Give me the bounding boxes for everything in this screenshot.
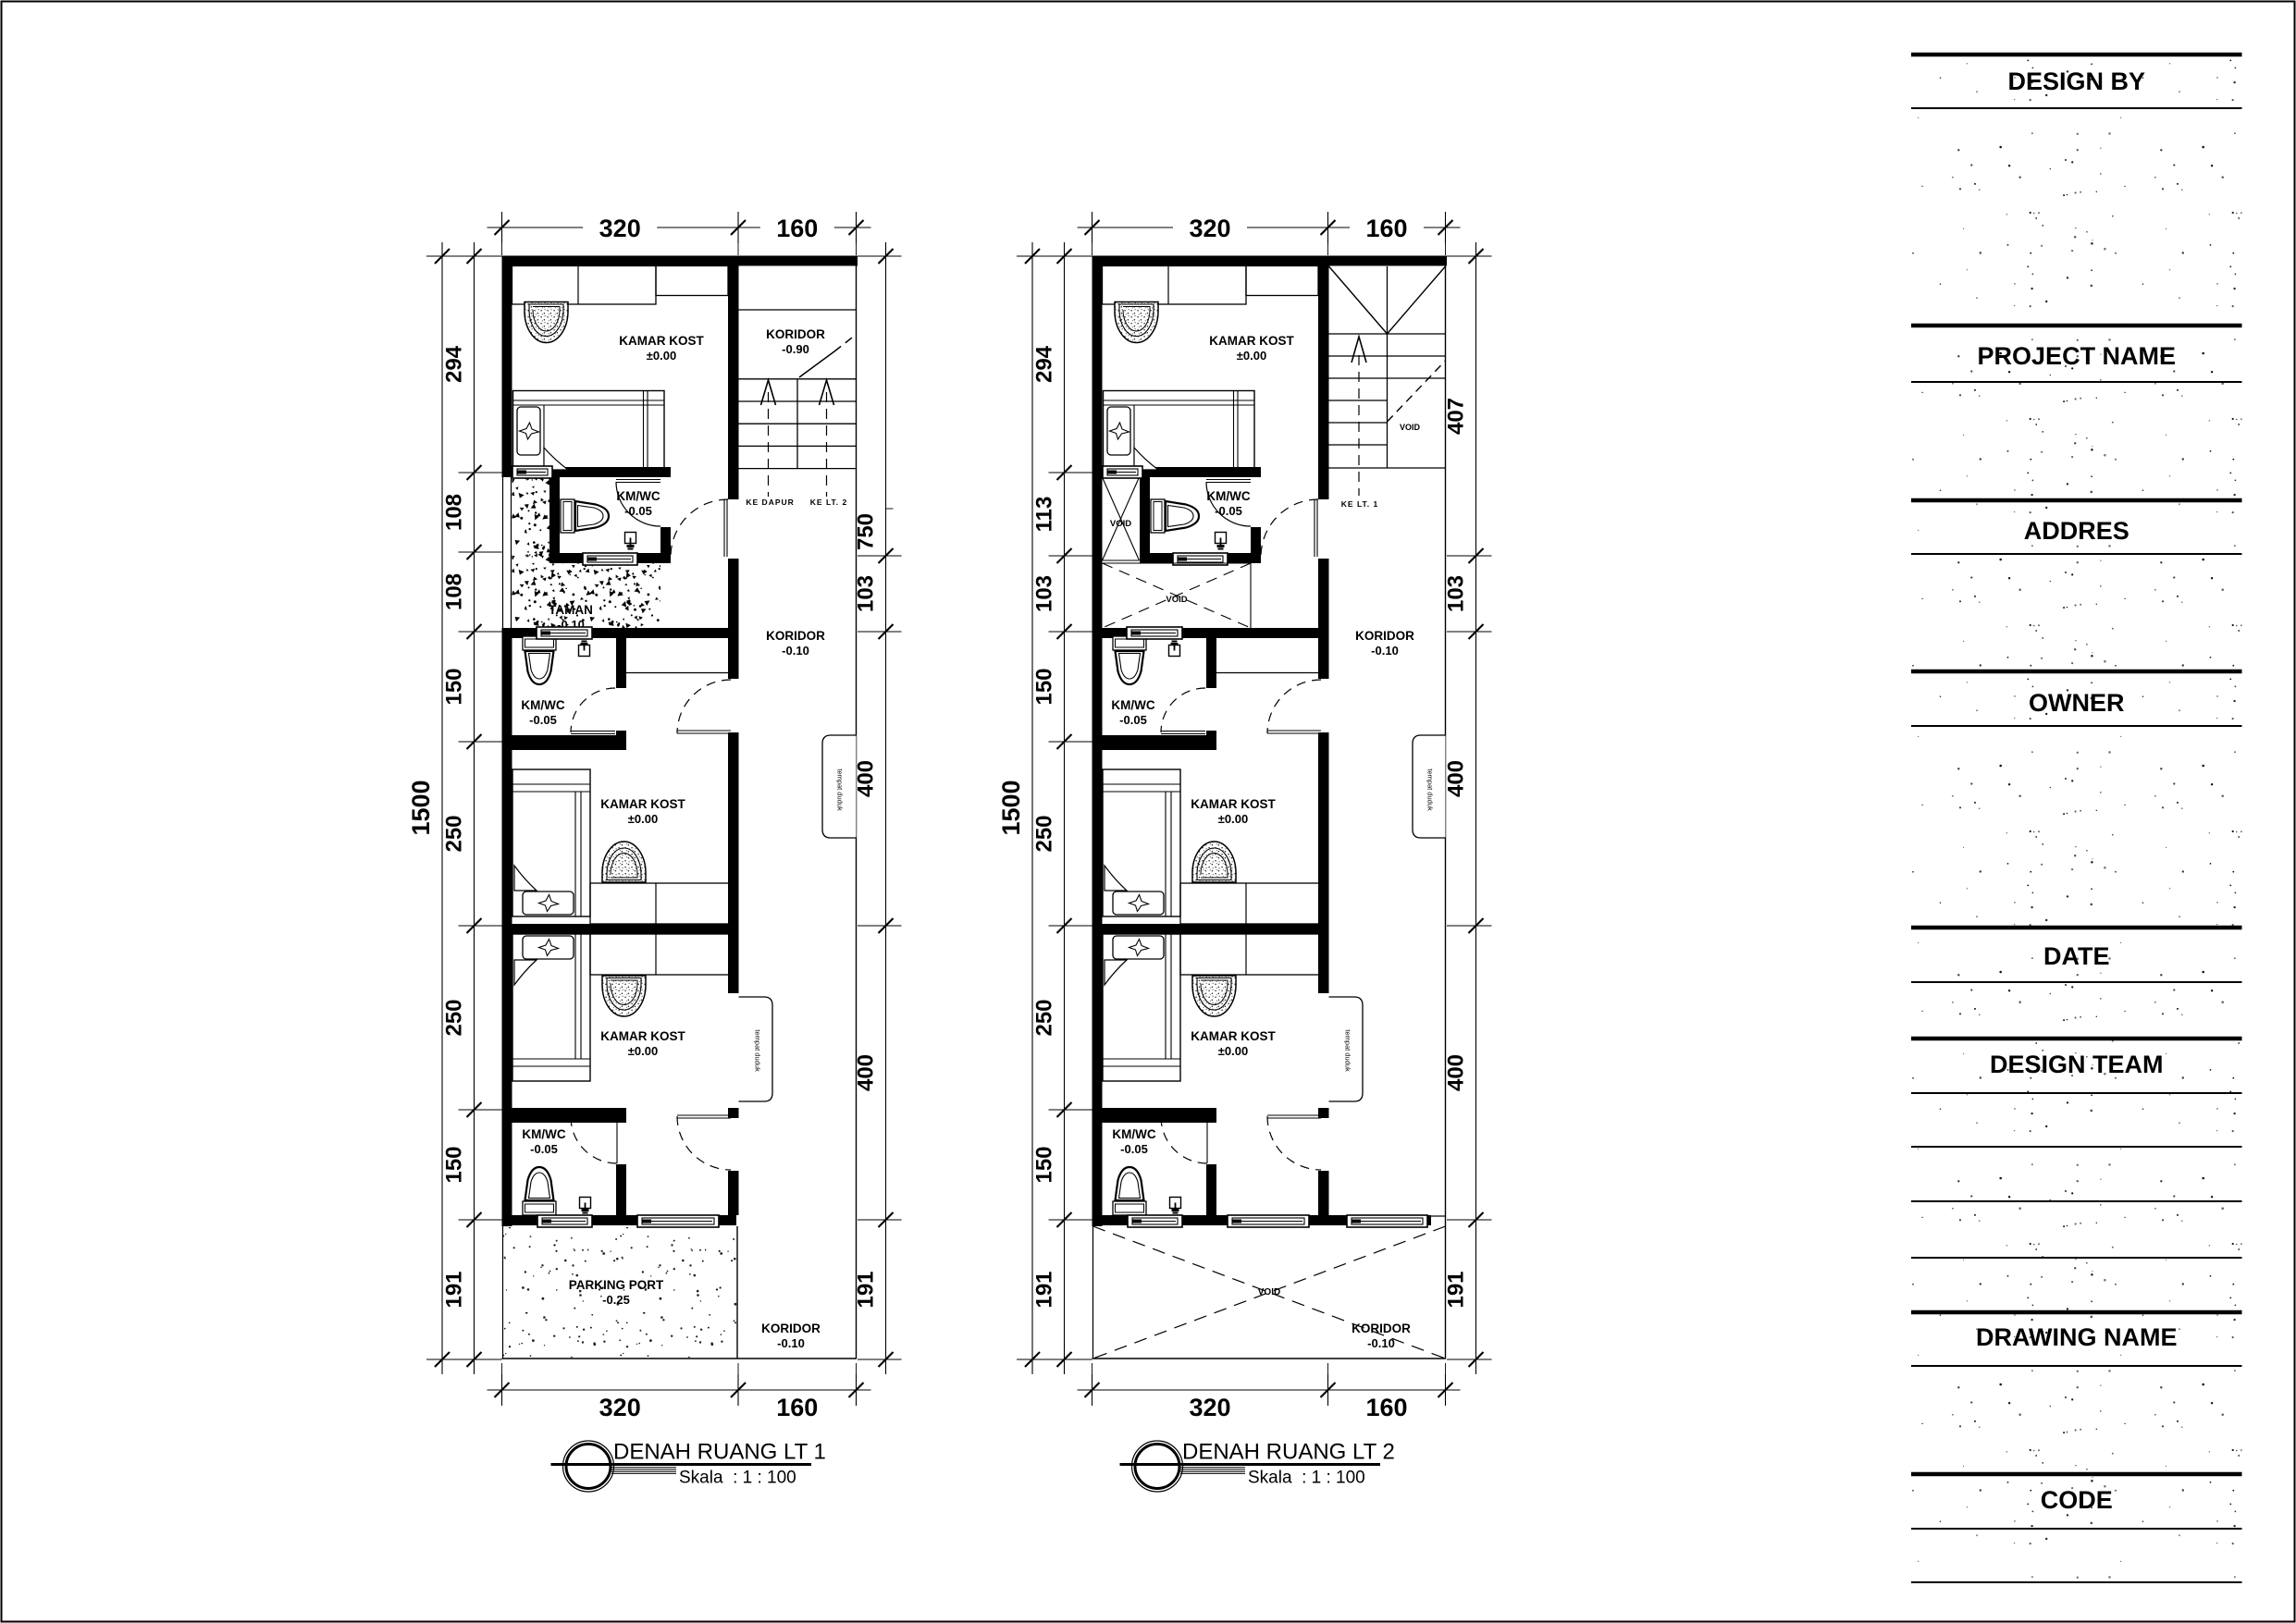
svg-text:DENAH RUANG LT 1: DENAH RUANG LT 1: [613, 1440, 826, 1465]
svg-text:-0.05: -0.05: [1120, 1142, 1148, 1156]
svg-text:KAMAR KOST: KAMAR KOST: [1191, 1029, 1276, 1043]
svg-text:tempat duduk: tempat duduk: [836, 768, 845, 811]
svg-text:-0.05: -0.05: [1119, 713, 1147, 727]
svg-text:VOID: VOID: [1400, 423, 1421, 432]
svg-text:KM/WC: KM/WC: [521, 698, 564, 712]
svg-text:113: 113: [1032, 497, 1057, 533]
svg-text:160: 160: [776, 1394, 818, 1421]
svg-text:VOID: VOID: [1166, 595, 1187, 605]
svg-text:tempat duduk: tempat duduk: [1344, 1029, 1352, 1072]
svg-text:191: 191: [442, 1271, 467, 1308]
svg-text:Skala : 1 : 100: Skala : 1 : 100: [679, 1469, 796, 1488]
svg-text:103: 103: [1444, 575, 1469, 612]
svg-text:±0.00: ±0.00: [628, 812, 658, 826]
svg-text:±0.00: ±0.00: [1218, 812, 1248, 826]
svg-text:1500: 1500: [407, 780, 435, 835]
svg-text:KM/WC: KM/WC: [616, 489, 660, 503]
svg-text:-0.10: -0.10: [1367, 1336, 1395, 1350]
svg-text:KORIDOR: KORIDOR: [1355, 629, 1414, 643]
svg-text:KAMAR KOST: KAMAR KOST: [1209, 334, 1294, 348]
svg-text:400: 400: [854, 760, 879, 797]
svg-text:191: 191: [854, 1271, 879, 1308]
svg-text:PARKING PORT: PARKING PORT: [569, 1278, 664, 1292]
svg-text:Skala : 1 : 100: Skala : 1 : 100: [1248, 1469, 1365, 1488]
svg-text:DESIGN BY: DESIGN BY: [2008, 68, 2146, 95]
svg-text:103: 103: [1032, 575, 1057, 612]
svg-text:VOID: VOID: [1110, 519, 1131, 529]
svg-text:TAMAN: TAMAN: [549, 603, 593, 617]
svg-text:320: 320: [599, 1394, 641, 1421]
svg-text:400: 400: [1444, 760, 1469, 797]
svg-text:KE LT. 1: KE LT. 1: [1341, 499, 1378, 509]
svg-text:320: 320: [1189, 1394, 1230, 1421]
svg-text:250: 250: [1032, 815, 1057, 852]
svg-text:-0.10: -0.10: [777, 1336, 805, 1350]
svg-text:400: 400: [1444, 1054, 1469, 1091]
svg-text:250: 250: [442, 815, 467, 852]
svg-text:108: 108: [442, 494, 467, 531]
svg-text:KORIDOR: KORIDOR: [1352, 1322, 1411, 1335]
svg-text:108: 108: [442, 573, 467, 610]
svg-text:400: 400: [854, 1054, 879, 1091]
svg-text:KAMAR KOST: KAMAR KOST: [600, 1029, 685, 1043]
svg-text:CODE: CODE: [2041, 1486, 2113, 1514]
svg-text:-0.10: -0.10: [1371, 644, 1399, 658]
svg-text:160: 160: [1365, 1394, 1407, 1421]
svg-text:-0.10: -0.10: [782, 644, 809, 658]
svg-text:320: 320: [599, 215, 641, 242]
svg-text:150: 150: [442, 668, 467, 705]
svg-text:KM/WC: KM/WC: [1112, 1127, 1155, 1141]
svg-text:750: 750: [854, 513, 879, 550]
svg-text:407: 407: [1444, 398, 1469, 435]
svg-text:KM/WC: KM/WC: [1111, 698, 1154, 712]
svg-text:KAMAR KOST: KAMAR KOST: [600, 797, 685, 811]
svg-text:-0.05: -0.05: [529, 713, 557, 727]
svg-text:DESIGN TEAM: DESIGN TEAM: [1990, 1051, 2164, 1078]
svg-text:KE LT. 2: KE LT. 2: [810, 498, 847, 507]
svg-text:KORIDOR: KORIDOR: [761, 1322, 821, 1335]
svg-text:150: 150: [1032, 1146, 1057, 1183]
svg-text:103: 103: [854, 575, 879, 612]
svg-text:DRAWING NAME: DRAWING NAME: [1976, 1323, 2178, 1351]
svg-text:PROJECT NAME: PROJECT NAME: [1978, 342, 2177, 370]
svg-text:250: 250: [1032, 999, 1057, 1036]
svg-text:±0.00: ±0.00: [1218, 1044, 1248, 1058]
svg-text:DENAH RUANG LT 2: DENAH RUANG LT 2: [1182, 1440, 1395, 1465]
svg-text:tempat duduk: tempat duduk: [1426, 768, 1435, 811]
svg-text:KORIDOR: KORIDOR: [766, 327, 825, 341]
svg-text:294: 294: [442, 345, 467, 383]
svg-text:KM/WC: KM/WC: [522, 1127, 565, 1141]
svg-text:-0.05: -0.05: [1215, 504, 1242, 518]
svg-text:191: 191: [1444, 1271, 1469, 1308]
svg-text:KE DAPUR: KE DAPUR: [746, 498, 794, 507]
svg-text:1500: 1500: [997, 780, 1025, 835]
svg-text:tempat duduk: tempat duduk: [754, 1029, 762, 1072]
svg-text:OWNER: OWNER: [2029, 689, 2125, 717]
svg-text:191: 191: [1032, 1271, 1057, 1308]
svg-text:150: 150: [442, 1146, 467, 1183]
svg-text:160: 160: [1365, 215, 1407, 242]
svg-text:±0.00: ±0.00: [1237, 349, 1266, 363]
svg-text:320: 320: [1189, 215, 1230, 242]
svg-text:250: 250: [442, 999, 467, 1036]
svg-text:-0.90: -0.90: [782, 342, 809, 356]
svg-text:DATE: DATE: [2043, 942, 2110, 970]
svg-text:-0.05: -0.05: [624, 504, 652, 518]
svg-text:294: 294: [1032, 345, 1057, 383]
svg-text:ADDRES: ADDRES: [2024, 517, 2129, 545]
svg-text:VOID: VOID: [1258, 1287, 1280, 1297]
svg-text:-0.05: -0.05: [530, 1142, 558, 1156]
svg-text:±0.00: ±0.00: [628, 1044, 658, 1058]
svg-text:KAMAR KOST: KAMAR KOST: [1191, 797, 1276, 811]
svg-text:KORIDOR: KORIDOR: [766, 629, 825, 643]
svg-text:-0.25: -0.25: [602, 1293, 630, 1307]
svg-text:KAMAR KOST: KAMAR KOST: [619, 334, 704, 348]
svg-text:150: 150: [1032, 668, 1057, 705]
svg-text:160: 160: [776, 215, 818, 242]
svg-text:KM/WC: KM/WC: [1206, 489, 1250, 503]
svg-text:±0.00: ±0.00: [647, 349, 676, 363]
